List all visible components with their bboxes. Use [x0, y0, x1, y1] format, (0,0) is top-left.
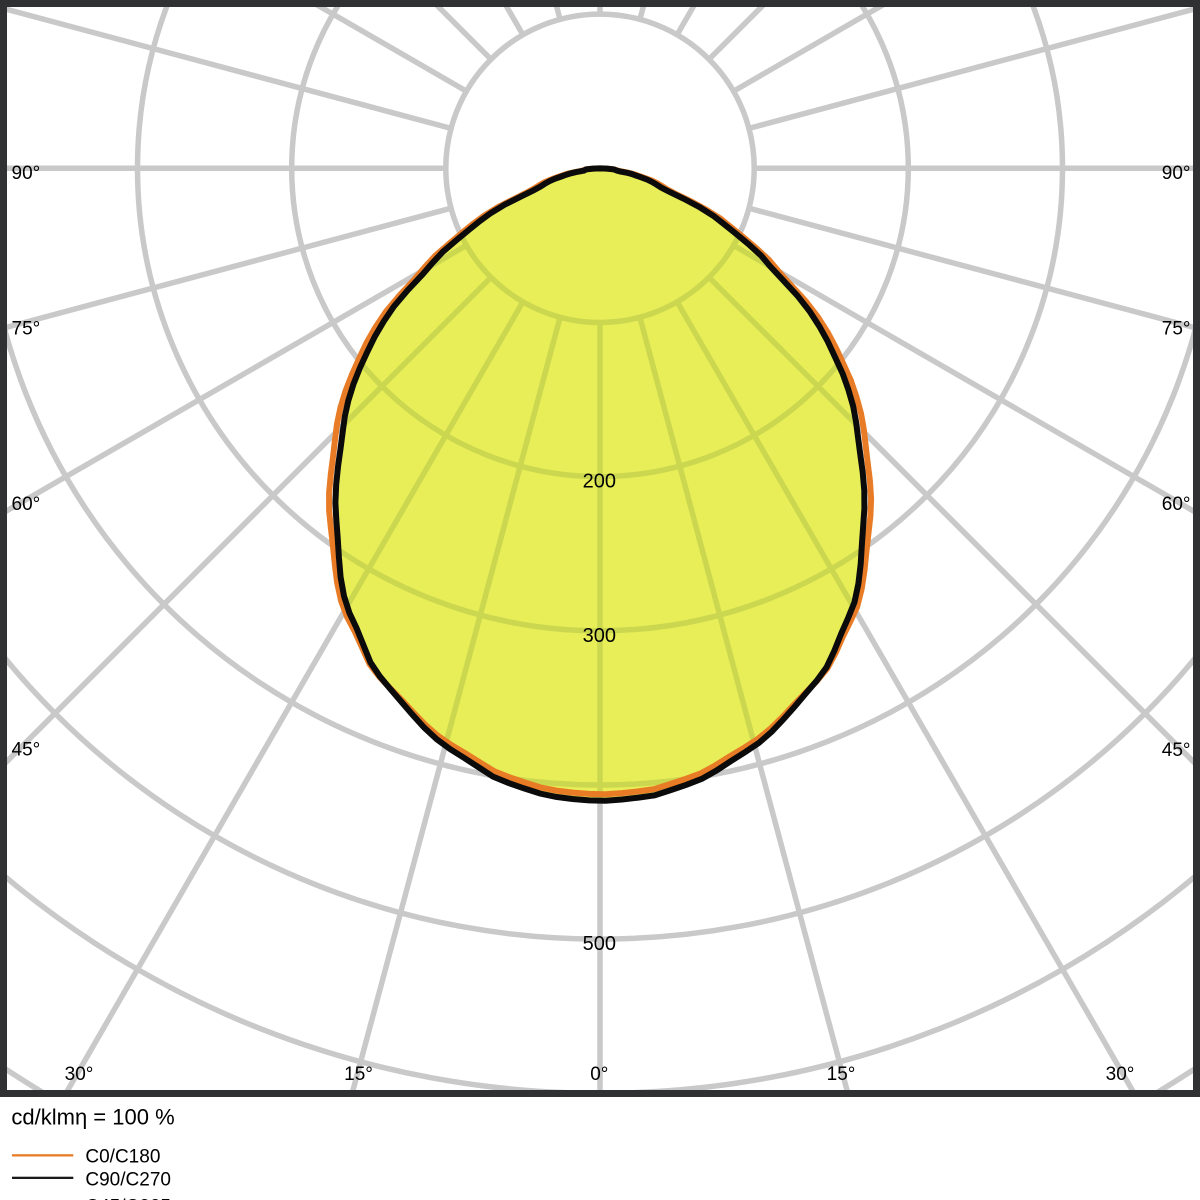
svg-text:C90/C270: C90/C270 — [85, 1170, 171, 1191]
svg-text:300: 300 — [583, 625, 616, 647]
svg-text:60°: 60° — [1162, 494, 1191, 515]
svg-text:15°: 15° — [344, 1064, 373, 1085]
svg-text:30°: 30° — [1106, 1064, 1135, 1085]
svg-text:75°: 75° — [12, 319, 41, 340]
svg-text:0°: 0° — [590, 1064, 608, 1085]
svg-text:15°: 15° — [827, 1064, 856, 1085]
svg-text:C45/C225: C45/C225 — [85, 1197, 171, 1200]
svg-text:cd/klmη = 100 %: cd/klmη = 100 % — [11, 1105, 174, 1130]
svg-text:75°: 75° — [1162, 319, 1191, 340]
svg-text:30°: 30° — [65, 1064, 94, 1085]
svg-text:45°: 45° — [1162, 740, 1191, 761]
svg-text:45°: 45° — [12, 740, 41, 761]
svg-text:60°: 60° — [12, 494, 41, 515]
svg-text:90°: 90° — [1162, 163, 1191, 184]
svg-text:C0/C180: C0/C180 — [85, 1147, 160, 1168]
svg-text:200: 200 — [583, 471, 616, 493]
svg-text:90°: 90° — [12, 163, 41, 184]
svg-text:500: 500 — [583, 933, 616, 955]
